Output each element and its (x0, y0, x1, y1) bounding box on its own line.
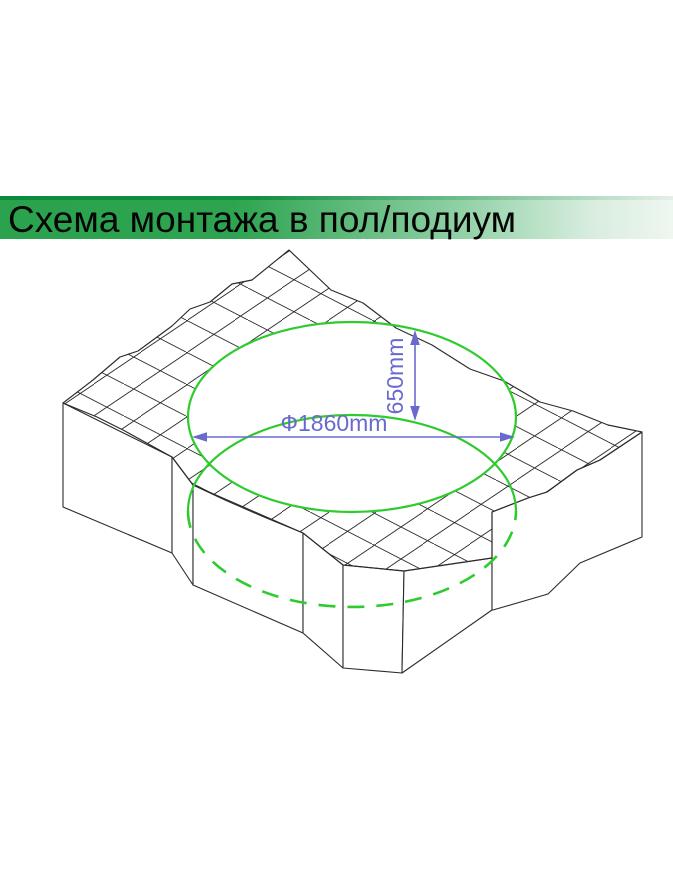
depth-label: 650mm (382, 338, 408, 415)
wall-front-bottom (343, 565, 404, 673)
slide: Схема монтажа в пол/подиум (0, 0, 673, 881)
wall-front-right (402, 558, 492, 673)
installation-diagram: Ф1860mm 650mm (0, 0, 673, 881)
diameter-label: Ф1860mm (281, 410, 388, 436)
